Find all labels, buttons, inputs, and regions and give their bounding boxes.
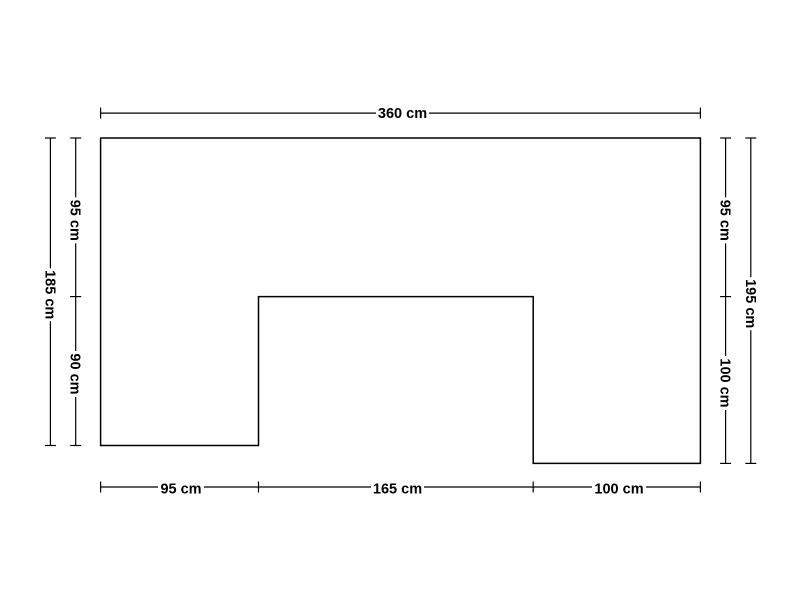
- svg-text:195 cm: 195 cm: [742, 279, 758, 328]
- svg-text:100 cm: 100 cm: [594, 482, 643, 498]
- svg-text:90 cm: 90 cm: [67, 353, 83, 394]
- svg-text:95 cm: 95 cm: [160, 482, 201, 498]
- svg-text:100 cm: 100 cm: [717, 358, 733, 407]
- svg-text:165 cm: 165 cm: [373, 482, 422, 498]
- svg-text:95 cm: 95 cm: [717, 200, 733, 241]
- svg-text:360 cm: 360 cm: [378, 106, 427, 122]
- svg-text:95 cm: 95 cm: [67, 200, 83, 241]
- svg-text:185 cm: 185 cm: [41, 270, 57, 319]
